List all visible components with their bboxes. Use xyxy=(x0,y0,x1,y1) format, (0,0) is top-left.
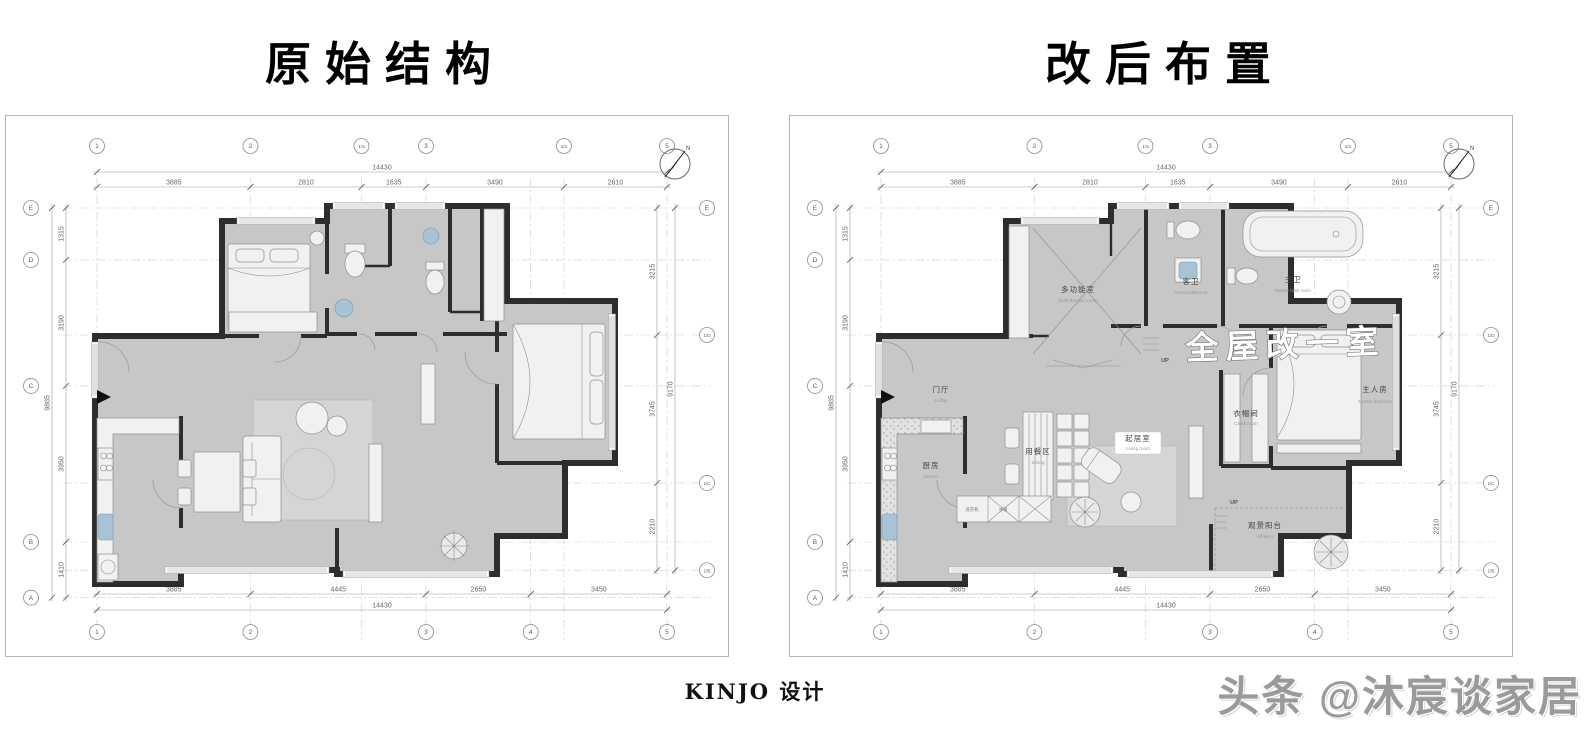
dim-label: 4445 xyxy=(330,587,346,594)
axis-bubble-label: 1/C xyxy=(703,481,711,486)
dim-label: 2810 xyxy=(298,180,314,187)
dim-label: 3950 xyxy=(59,456,66,472)
svg-text:Cloak room: Cloak room xyxy=(1234,421,1258,426)
toilet xyxy=(1167,221,1200,239)
original-plan-panel: 3885281016353490261014430388544452650345… xyxy=(5,115,729,657)
axis-bubble-label: 1/B xyxy=(1488,568,1495,573)
bathtub xyxy=(1243,211,1363,257)
axis-bubble-label: 5 xyxy=(665,143,669,150)
room-label: 主卫 xyxy=(1285,274,1302,284)
toilet xyxy=(426,262,444,294)
pouf xyxy=(296,402,328,434)
dim-label: 3490 xyxy=(487,180,503,187)
axis-bubble-label: 1/B xyxy=(704,568,711,573)
dim-label: 3950 xyxy=(843,456,850,472)
wardrobe xyxy=(1009,226,1029,338)
wardrobe xyxy=(484,209,504,321)
tv-cabinet xyxy=(1189,426,1203,498)
dim-label: 14430 xyxy=(1156,603,1176,610)
axis-bubble-label: 3 xyxy=(1208,143,1212,150)
wardrobe xyxy=(1252,374,1268,462)
axis-bubble-label: 1/3 xyxy=(1142,144,1149,149)
axis-bubble-label: 1/D xyxy=(703,333,711,338)
dim-label: 3215 xyxy=(650,264,657,280)
sink xyxy=(335,299,353,317)
dim-label: 3190 xyxy=(843,315,850,331)
axis-bubble-label: E xyxy=(29,205,33,212)
dim-label: 3215 xyxy=(1434,264,1441,280)
room-label: 客卫 xyxy=(1183,276,1200,286)
sink xyxy=(423,228,439,244)
axis-bubble-label: 5 xyxy=(1449,143,1453,150)
axis-bubble-label: B xyxy=(813,539,817,546)
room-label: 门厅 xyxy=(933,385,950,394)
axis-bubble-label: 1/D xyxy=(1487,333,1495,338)
axis-bubble-label: B xyxy=(29,539,33,546)
dining-table xyxy=(1023,412,1053,500)
axis-bubble-label: 1 xyxy=(95,143,99,150)
plant xyxy=(1314,535,1348,569)
up-label: UP xyxy=(1230,500,1238,506)
axis-bubble-label: 5 xyxy=(1449,629,1453,636)
axis-bubble-label: 1/4 xyxy=(1345,144,1352,149)
renovated-plan-title: 改后布置 xyxy=(955,28,1375,94)
dim-label: 9170 xyxy=(668,381,675,397)
axis-bubble-label: 2 xyxy=(249,143,253,150)
svg-text:N: N xyxy=(686,146,690,152)
svg-text:Guest bathroom: Guest bathroom xyxy=(1175,290,1208,295)
dim-label: 1635 xyxy=(386,180,402,187)
svg-text:Multi-function room: Multi-function room xyxy=(1058,298,1097,303)
plant xyxy=(1070,497,1100,527)
dim-label: 9170 xyxy=(1452,381,1459,397)
svg-text:Master bath room: Master bath room xyxy=(1275,288,1311,293)
axis-bubble-label: E xyxy=(1489,205,1493,212)
dim-label: 2610 xyxy=(608,180,624,187)
stove xyxy=(98,448,113,480)
brand-credit: KINJO 设计 xyxy=(610,676,900,706)
dim-label: 14430 xyxy=(1156,165,1176,172)
svg-text:Living room: Living room xyxy=(1126,446,1150,451)
washer-label: 洗衣机 xyxy=(965,506,979,513)
renovated-plan-drawing: 3885281016353490261014430388544452650345… xyxy=(790,116,1512,656)
svg-text:Kitchen: Kitchen xyxy=(923,474,939,479)
room-label: 主人房 xyxy=(1362,384,1388,394)
dim-label: 2650 xyxy=(471,587,487,594)
up-label: UP xyxy=(1161,358,1169,364)
stool xyxy=(310,231,324,245)
axis-bubble-label: 2 xyxy=(249,629,253,636)
dim-label: 2210 xyxy=(1434,519,1441,535)
axis-bubble-label: 5 xyxy=(665,629,669,636)
axis-bubble-label: 1/4 xyxy=(561,144,568,149)
dim-label: 3885 xyxy=(166,180,182,187)
svg-text:Dining: Dining xyxy=(1031,460,1044,465)
dim-label: 2650 xyxy=(1255,587,1271,594)
stove xyxy=(882,448,897,480)
fridge-label: 冰箱 xyxy=(999,506,1008,513)
axis-bubble-label: 2 xyxy=(1033,629,1037,636)
dim-label: 1635 xyxy=(1170,180,1186,187)
svg-text:Lobby: Lobby xyxy=(935,398,948,403)
room-label: 多功能室 xyxy=(1061,284,1095,294)
hood xyxy=(921,420,951,433)
dim-label: 2610 xyxy=(1392,180,1408,187)
axis-bubble-label: 4 xyxy=(529,629,533,636)
axis-bubble-label: E xyxy=(705,205,709,212)
dim-label: 3885 xyxy=(950,180,966,187)
dim-label: 3745 xyxy=(1434,401,1441,417)
axis-bubble-label: D xyxy=(29,257,34,264)
kitchen-sink xyxy=(882,514,897,540)
kitchen-sink xyxy=(98,514,113,540)
pouf xyxy=(327,416,347,436)
dim-label: 1410 xyxy=(59,562,66,578)
axis-bubble-label: C xyxy=(813,383,818,390)
dim-label: 2810 xyxy=(1082,180,1098,187)
page: 原始结构 改后布置 388528101635349026101443038854… xyxy=(0,0,1590,748)
room-label: 观景阳台 xyxy=(1248,520,1282,530)
axis-bubble-label: 2 xyxy=(1033,143,1037,150)
side-table xyxy=(1121,492,1141,512)
axis-bubble-label: 1 xyxy=(95,629,99,636)
cabinet xyxy=(421,364,435,424)
toilet xyxy=(1227,268,1258,284)
dim-label: 4445 xyxy=(1114,587,1130,594)
dresser xyxy=(229,312,317,332)
svg-text:Alfresco: Alfresco xyxy=(1257,534,1274,539)
room-label: 起居室 xyxy=(1125,433,1151,443)
bottom-watermark: 头条 @沐宸谈家居 xyxy=(1217,663,1582,724)
round-rug xyxy=(283,448,335,500)
dim-label: 1315 xyxy=(843,226,850,242)
tall-cabinet xyxy=(369,444,382,522)
dim-label: 3885 xyxy=(166,587,182,594)
dim-label: 9865 xyxy=(829,395,836,411)
axis-bubble-label: D xyxy=(813,257,818,264)
dim-label: 3490 xyxy=(1271,180,1287,187)
dim-label: 14430 xyxy=(372,603,392,610)
room-label: 用餐区 xyxy=(1025,447,1051,456)
room-label: 衣帽间 xyxy=(1233,408,1259,418)
svg-text:Master bedroom: Master bedroom xyxy=(1358,399,1392,404)
dim-label: 3450 xyxy=(591,587,607,594)
axis-bubble-label: 3 xyxy=(424,143,428,150)
original-plan-title: 原始结构 xyxy=(175,28,595,94)
dim-label: 2210 xyxy=(650,519,657,535)
axis-bubble-label: 1 xyxy=(879,629,883,636)
room-label: 厨房 xyxy=(923,460,940,470)
svg-text:N: N xyxy=(1470,146,1474,152)
axis-bubble-label: 3 xyxy=(1208,629,1212,636)
dim-label: 3190 xyxy=(59,315,66,331)
dim-label: 1410 xyxy=(843,562,850,578)
axis-bubble-label: 1/C xyxy=(1487,481,1495,486)
axis-bubble-label: E xyxy=(813,205,817,212)
dim-label: 1315 xyxy=(59,226,66,242)
toilet xyxy=(345,244,365,277)
renovated-plan-panel: 3885281016353490261014430388544452650345… xyxy=(789,115,1513,657)
axis-bubble-label: 4 xyxy=(1313,629,1317,636)
bed-bench xyxy=(1277,444,1361,453)
dim-label: 3450 xyxy=(1375,587,1391,594)
dim-label: 9865 xyxy=(45,395,52,411)
wardrobe xyxy=(1224,374,1240,462)
dim-label: 3745 xyxy=(650,401,657,417)
original-plan-drawing: 3885281016353490261014430388544452650345… xyxy=(6,116,728,656)
round-sink xyxy=(1327,290,1351,314)
dim-label: 3885 xyxy=(950,587,966,594)
axis-bubble-label: 3 xyxy=(424,629,428,636)
axis-bubble-label: 1 xyxy=(879,143,883,150)
axis-bubble-label: C xyxy=(29,383,34,390)
axis-bubble-label: 1/3 xyxy=(358,144,365,149)
plan-watermark: 全屋改一室 xyxy=(1184,322,1386,368)
dining-table xyxy=(194,452,240,512)
dim-label: 14430 xyxy=(372,165,392,172)
